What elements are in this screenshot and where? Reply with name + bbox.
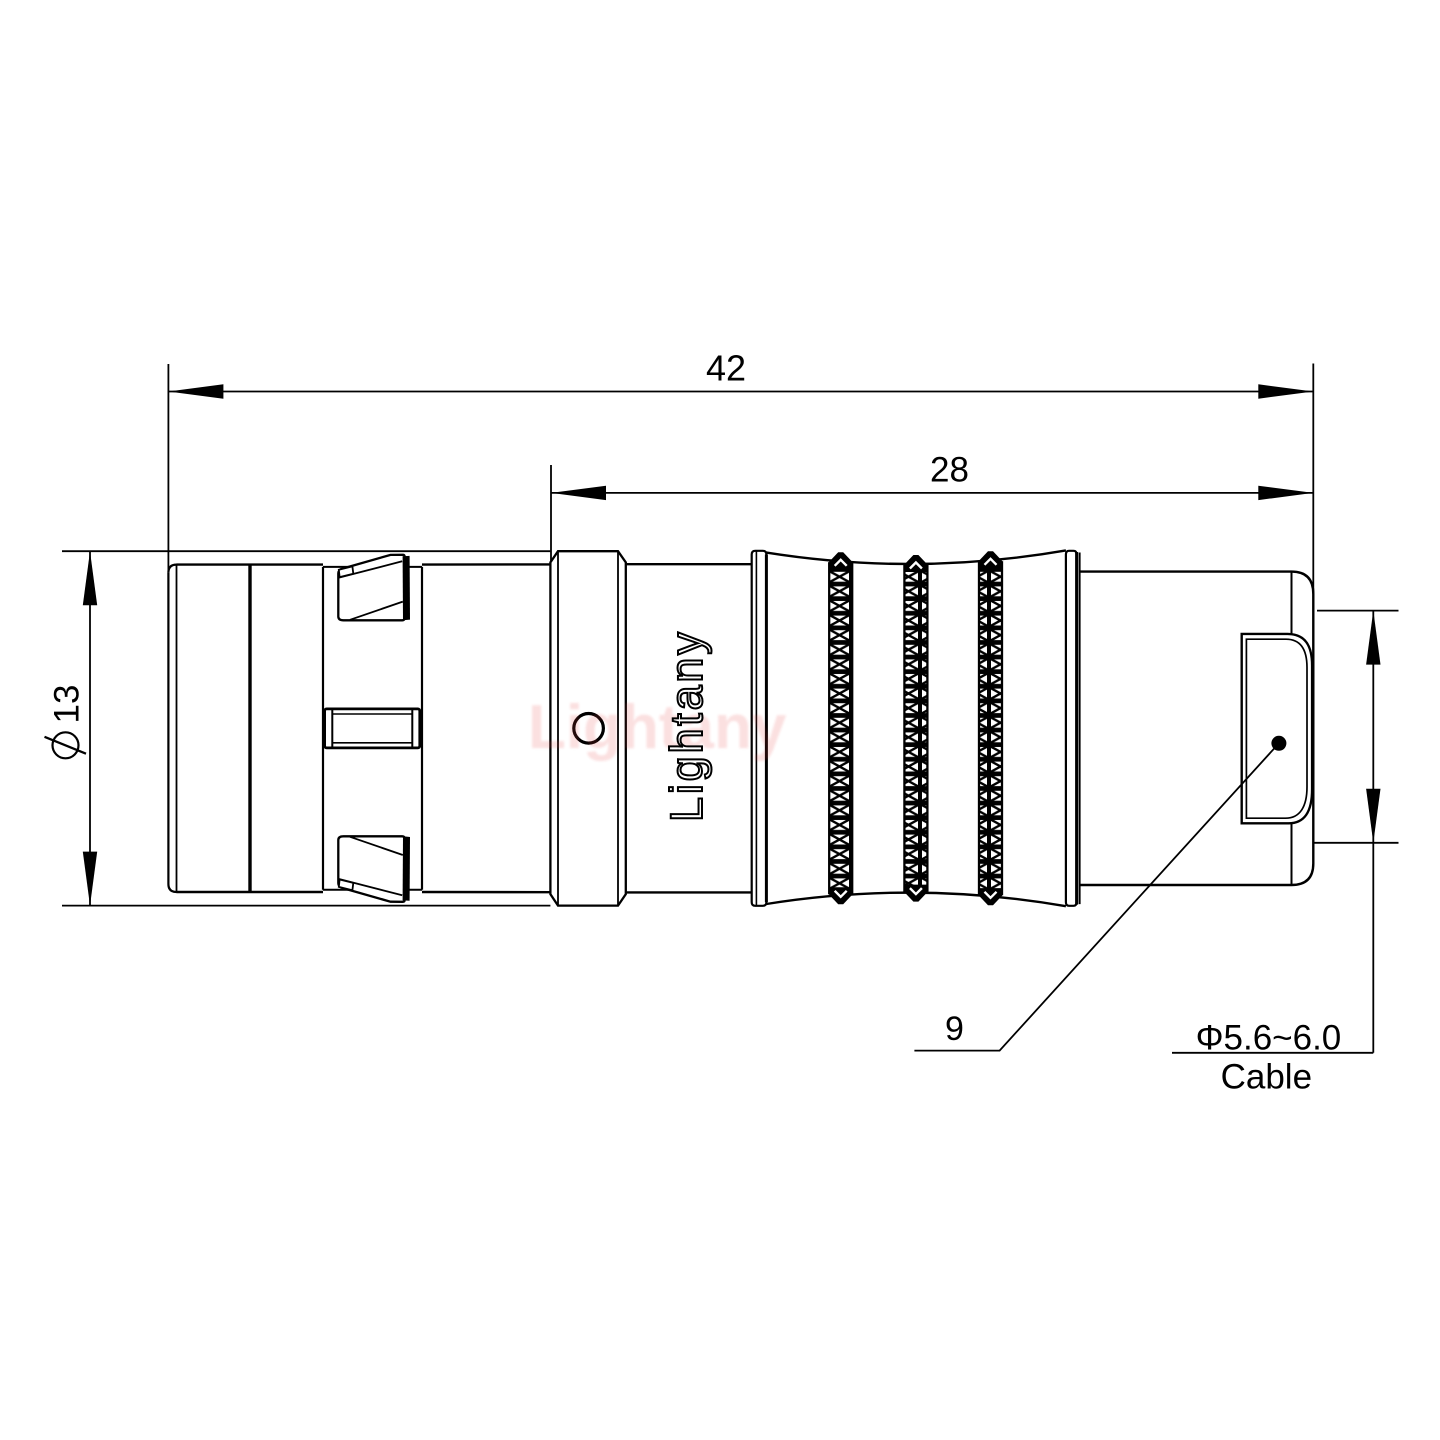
svg-text:13: 13 bbox=[48, 685, 87, 724]
svg-text:28: 28 bbox=[930, 450, 969, 489]
svg-text:Φ5.6~6.0: Φ5.6~6.0 bbox=[1196, 1018, 1342, 1057]
svg-text:42: 42 bbox=[706, 348, 746, 389]
svg-text:9: 9 bbox=[945, 1010, 964, 1048]
svg-text:Lightany: Lightany bbox=[528, 693, 787, 762]
svg-text:Cable: Cable bbox=[1221, 1058, 1312, 1097]
svg-text:Lightany: Lightany bbox=[661, 629, 712, 822]
